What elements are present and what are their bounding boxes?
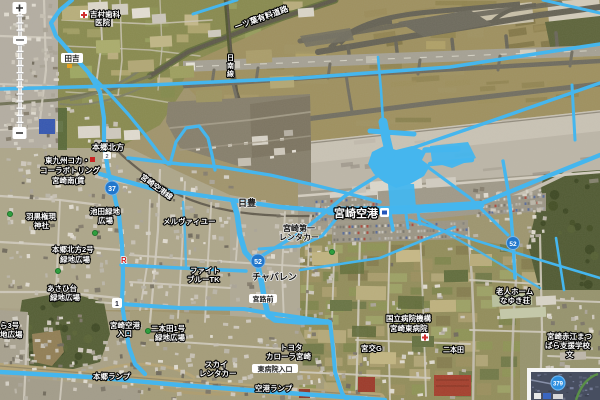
svg-text:ブルーTK: ブルーTK (187, 274, 220, 284)
svg-text:田吉: 田吉 (65, 53, 80, 63)
svg-text:緑地広場: 緑地広場 (60, 254, 90, 264)
svg-text:52: 52 (254, 259, 262, 266)
svg-text:二本田1号: 二本田1号 (151, 323, 186, 333)
svg-text:37: 37 (108, 186, 116, 193)
svg-text:メルヴァィユー: メルヴァィユー (163, 216, 216, 226)
svg-text:空港ランプ: 空港ランプ (255, 383, 293, 393)
svg-text:日: 日 (227, 54, 234, 62)
svg-text:レンタカー: レンタカー (199, 368, 237, 378)
svg-text:1: 1 (115, 301, 119, 308)
svg-text:宮崎南(賃: 宮崎南(賃 (52, 175, 85, 185)
svg-text:文: 文 (566, 349, 574, 359)
svg-text:ら3号: ら3号 (0, 321, 20, 330)
svg-text:R: R (121, 256, 127, 265)
svg-text:地広場: 地広場 (0, 329, 23, 339)
svg-text:宮路前: 宮路前 (253, 295, 274, 304)
svg-text:南: 南 (227, 61, 234, 70)
svg-text:宮崎第一: 宮崎第一 (283, 223, 315, 233)
svg-text:二本田: 二本田 (443, 345, 464, 354)
svg-text:線: 線 (227, 69, 234, 78)
svg-text:東病院入口: 東病院入口 (258, 365, 293, 374)
svg-text:宮崎空港: 宮崎空港 (334, 206, 379, 220)
svg-text:カローラ宮崎: カローラ宮崎 (266, 351, 311, 361)
svg-text:緑地広場: 緑地広場 (50, 292, 80, 302)
svg-text:宮交G: 宮交G (361, 343, 382, 353)
svg-text:宮崎東病院: 宮崎東病院 (390, 323, 428, 333)
svg-text:ファイト: ファイト (190, 266, 220, 275)
svg-text:52: 52 (509, 241, 517, 248)
svg-text:本郷北方2号: 本郷北方2号 (51, 244, 94, 254)
svg-text:2: 2 (105, 154, 108, 160)
svg-text:なゆき荘: なゆき荘 (500, 295, 530, 305)
svg-text:宮崎赤江まつ: 宮崎赤江まつ (547, 331, 592, 341)
svg-text:チャバレン: チャバレン (252, 272, 297, 282)
svg-text:国立病院機構: 国立病院機構 (386, 313, 431, 323)
svg-text:レンタカー: レンタカー (279, 232, 319, 242)
svg-text:緑地広場: 緑地広場 (155, 332, 185, 342)
svg-text:コーラボトリング: コーラボトリング (40, 165, 100, 175)
svg-text:神社: 神社 (34, 220, 49, 230)
svg-text:日豊: 日豊 (238, 197, 256, 208)
svg-text:東九州コカ・: 東九州コカ・ (45, 155, 90, 165)
svg-text:羽黒権現: 羽黒権現 (26, 211, 56, 221)
svg-text:本郷ランプ: 本郷ランプ (92, 371, 131, 381)
svg-text:379: 379 (553, 382, 564, 388)
svg-text:あさひ台: あさひ台 (47, 283, 77, 293)
svg-text:老人ホーム: 老人ホーム (495, 286, 534, 296)
svg-text:ばら支援学校: ばら支援学校 (545, 340, 590, 350)
svg-text:池田緑地: 池田緑地 (90, 206, 120, 216)
svg-text:広場: 広場 (98, 215, 113, 225)
svg-text:医院: 医院 (95, 17, 110, 27)
svg-text:スカイ: スカイ (205, 360, 228, 369)
svg-text:入口: 入口 (116, 329, 132, 338)
svg-text:トヨタ: トヨタ (280, 342, 303, 352)
svg-text:本郷北方: 本郷北方 (91, 142, 124, 152)
